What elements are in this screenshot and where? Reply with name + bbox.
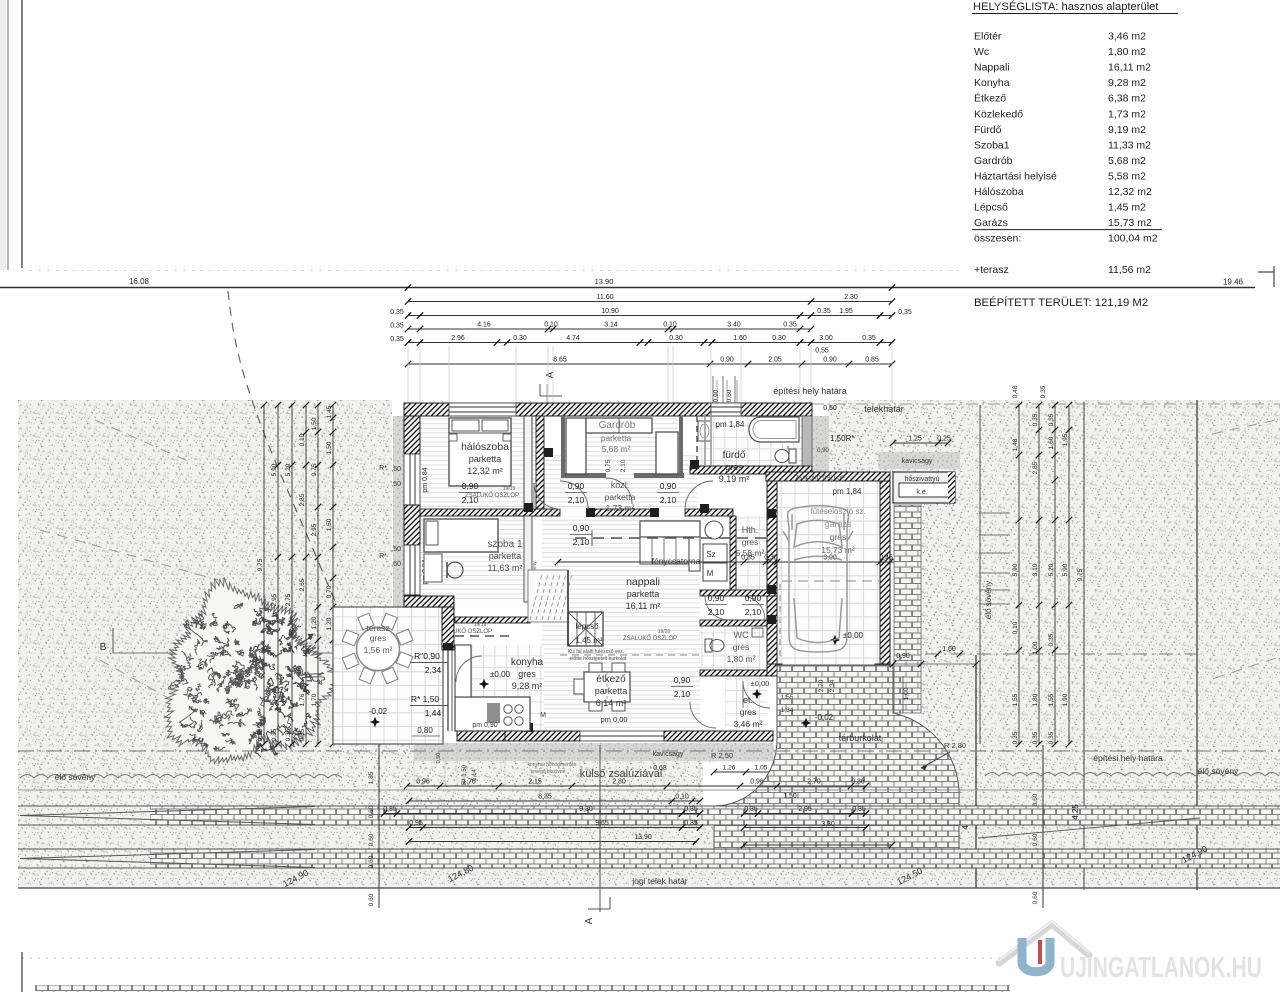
svg-text:10.90: 10.90 <box>601 308 619 315</box>
svg-text:0,35: 0,35 <box>684 806 698 813</box>
svg-text:2,34: 2,34 <box>425 665 442 675</box>
svg-text:gres: gres <box>742 537 759 547</box>
svg-text:gres: gres <box>740 707 757 717</box>
svg-text:9,65: 9,65 <box>595 820 609 827</box>
svg-text:1,48: 1,48 <box>1012 438 1019 451</box>
svg-text:3.00: 3.00 <box>819 335 833 342</box>
svg-text:1,80 m2: 1,80 m2 <box>1108 46 1146 58</box>
svg-text:9,75: 9,75 <box>1077 568 1084 581</box>
svg-text:2,95: 2,95 <box>798 806 812 813</box>
svg-text:5,90: 5,90 <box>1062 563 1069 576</box>
svg-text:étkező: étkező <box>596 674 626 685</box>
svg-text:2,10: 2,10 <box>708 607 725 617</box>
svg-text:15,73 m²: 15,73 m² <box>821 545 855 555</box>
svg-text:11,63 m²: 11,63 m² <box>488 563 523 573</box>
svg-text:M: M <box>707 569 714 578</box>
svg-text:1,26: 1,26 <box>723 765 736 772</box>
svg-text:kavicságy: kavicságy <box>653 751 684 758</box>
svg-text:0.90: 0.90 <box>720 357 734 364</box>
svg-text:építési hely határa: építési hely határa <box>773 386 847 396</box>
svg-text:0.10: 0.10 <box>663 322 677 329</box>
svg-text:11,33 m2: 11,33 m2 <box>1108 139 1151 151</box>
svg-text:R 2,80: R 2,80 <box>944 741 966 750</box>
svg-text:2,80: 2,80 <box>612 779 626 786</box>
svg-text:1,50: 1,50 <box>326 518 333 531</box>
svg-text:0,60: 0,60 <box>368 805 375 818</box>
svg-text:1.95: 1.95 <box>839 308 853 315</box>
svg-text:1,20: 1,20 <box>311 616 318 629</box>
svg-text:1,55: 1,55 <box>1048 693 1055 706</box>
svg-text:0,68: 0,68 <box>653 765 667 772</box>
svg-text:1,45 m2: 1,45 m2 <box>1108 202 1146 214</box>
svg-text:pm 0,90: pm 0,90 <box>472 722 497 729</box>
svg-text:100,04 m2: 100,04 m2 <box>1108 233 1158 245</box>
svg-text:0,60: 0,60 <box>1032 833 1039 846</box>
svg-text:Étkező: Étkező <box>974 92 1006 105</box>
svg-text:0,70: 0,70 <box>326 585 333 598</box>
svg-text:0,48: 0,48 <box>1012 385 1019 398</box>
svg-text:ZSALUKŐ OSZLOP: ZSALUKŐ OSZLOP <box>623 635 677 642</box>
svg-text:szoba 1: szoba 1 <box>487 539 522 550</box>
svg-text:0,85: 0,85 <box>741 555 755 562</box>
svg-text:Lépcső: Lépcső <box>974 202 1008 214</box>
svg-text:nappali: nappali <box>626 576 660 588</box>
svg-text:2,95: 2,95 <box>311 523 318 536</box>
svg-text:1,20: 1,20 <box>326 617 333 630</box>
svg-text:A: A <box>584 917 595 924</box>
svg-text:0,90: 0,90 <box>708 593 725 603</box>
svg-text:9,28 m²: 9,28 m² <box>512 681 543 691</box>
svg-text:1,55: 1,55 <box>1012 693 1019 706</box>
svg-text:Előtér: Előtér <box>974 31 1002 43</box>
svg-text:0.30: 0.30 <box>669 335 683 342</box>
svg-text:8.65: 8.65 <box>553 357 567 364</box>
svg-text:0,90: 0,90 <box>462 481 479 491</box>
svg-text:16.08: 16.08 <box>129 277 150 286</box>
svg-text:Garázs: Garázs <box>974 217 1008 229</box>
svg-text:0,96: 0,96 <box>416 779 430 786</box>
svg-text:kavicságy: kavicságy <box>902 458 933 465</box>
svg-text:2,10: 2,10 <box>573 537 590 547</box>
svg-text:6,38 m2: 6,38 m2 <box>1108 93 1146 105</box>
svg-text:0.30: 0.30 <box>772 335 786 342</box>
svg-text:9,19 m²: 9,19 m² <box>719 474 750 484</box>
svg-text:0,35: 0,35 <box>1032 413 1039 426</box>
svg-text:0,75: 0,75 <box>311 463 318 476</box>
svg-text:4.74: 4.74 <box>566 335 580 342</box>
svg-text:1,00: 1,00 <box>1032 641 1039 654</box>
svg-text:1,45: 1,45 <box>326 405 333 418</box>
svg-text:1,44: 1,44 <box>425 708 442 718</box>
svg-text:0,35: 0,35 <box>299 728 306 741</box>
svg-text:Hálószoba: Hálószoba <box>974 186 1024 198</box>
svg-text:élő sövény: élő sövény <box>1198 766 1239 776</box>
svg-text:8,35: 8,35 <box>538 794 552 801</box>
svg-text:2,70: 2,70 <box>818 679 825 692</box>
svg-text:0,90: 0,90 <box>817 448 829 454</box>
svg-text:előtte hőszigetelt burkolat: előtte hőszigetelt burkolat <box>570 656 627 662</box>
svg-text:telekhatár: telekhatár <box>864 404 904 414</box>
svg-text:0,35: 0,35 <box>1040 385 1047 398</box>
svg-text:1,60: 1,60 <box>1048 436 1055 449</box>
svg-text:0,35: 0,35 <box>1032 731 1039 744</box>
svg-text:A: A <box>545 371 556 378</box>
svg-text:13,90: 13,90 <box>634 834 652 841</box>
svg-text:lépcső: lépcső <box>575 622 599 631</box>
svg-text:15,73 m2: 15,73 m2 <box>1108 217 1152 229</box>
svg-text:0,35: 0,35 <box>744 806 758 813</box>
svg-text:1,25: 1,25 <box>908 436 922 443</box>
svg-text:±0,00: ±0,00 <box>751 679 770 688</box>
svg-text:0,10: 0,10 <box>1012 621 1019 634</box>
svg-text:tevegő elszívné: tevegő elszívné <box>531 769 566 775</box>
svg-text:19/20: 19/20 <box>658 629 671 635</box>
svg-text:0,35: 0,35 <box>390 336 404 343</box>
svg-text:0,35: 0,35 <box>1048 731 1055 744</box>
svg-text:1,90: 1,90 <box>1062 693 1069 706</box>
svg-text:R 2,50: R 2,50 <box>711 751 733 760</box>
svg-text:jogi telek határ: jogi telek határ <box>631 876 687 886</box>
svg-text:parketta: parketta <box>605 492 636 502</box>
svg-text:1,76: 1,76 <box>462 779 476 786</box>
svg-text:M: M <box>540 712 546 719</box>
svg-text:0.30: 0.30 <box>513 335 527 342</box>
svg-text:0,50: 0,50 <box>436 753 442 764</box>
svg-text:6,14 m²: 6,14 m² <box>596 698 627 708</box>
svg-text:11.60: 11.60 <box>597 294 614 301</box>
svg-text:0,90: 0,90 <box>573 523 590 533</box>
svg-text:0,35: 0,35 <box>271 728 278 741</box>
svg-text:19/19: 19/19 <box>503 486 516 492</box>
svg-text:Hth.: Hth. <box>742 525 759 535</box>
svg-text:HELYSÉGLISTA: hasznos alapter: HELYSÉGLISTA: hasznos alapterület <box>973 0 1159 13</box>
svg-text:12,32 m²: 12,32 m² <box>467 466 503 476</box>
svg-text:2,10: 2,10 <box>674 689 691 699</box>
svg-text:WC: WC <box>734 630 749 640</box>
svg-text:1,05: 1,05 <box>755 765 768 772</box>
svg-text:építési hely határa: építési hely határa <box>1093 753 1163 763</box>
svg-text:1,45 m²: 1,45 m² <box>575 636 602 645</box>
svg-text:1,34: 1,34 <box>781 707 794 714</box>
svg-text:0,35: 0,35 <box>257 728 264 741</box>
svg-text:BEÉPÍTETT TERÜLET: 121,19 M2: BEÉPÍTETT TERÜLET: 121,19 M2 <box>974 296 1148 309</box>
svg-text:0,60: 0,60 <box>1032 793 1039 806</box>
svg-text:5,58 m2: 5,58 m2 <box>1108 170 1146 182</box>
svg-text:térburkolat: térburkolat <box>839 733 882 743</box>
svg-text:terasz: terasz <box>366 623 389 633</box>
svg-text:k.e.: k.e. <box>916 489 927 496</box>
svg-text:2,10: 2,10 <box>660 495 677 505</box>
svg-text:,50: ,50 <box>391 561 401 568</box>
svg-text:9,28 m2: 9,28 m2 <box>1108 77 1146 89</box>
svg-text:élő sövény: élő sövény <box>984 581 993 619</box>
svg-text:1,50: 1,50 <box>326 441 333 454</box>
svg-text:2,70: 2,70 <box>807 779 821 786</box>
svg-text:1,73 m2: 1,73 m2 <box>1108 108 1146 120</box>
svg-text:élő sövény: élő sövény <box>55 772 96 782</box>
svg-text:Szoba1: Szoba1 <box>974 139 1010 151</box>
svg-text:+terasz: +terasz <box>974 264 1009 276</box>
svg-text:1,50: 1,50 <box>311 417 318 430</box>
svg-text:12,32 m2: 12,32 m2 <box>1108 186 1152 198</box>
svg-text:3,10: 3,10 <box>1032 563 1039 576</box>
svg-text:2,10: 2,10 <box>568 495 585 505</box>
svg-text:0,90: 0,90 <box>660 481 677 491</box>
svg-text:0,35: 0,35 <box>390 309 404 316</box>
svg-text:2,34: 2,34 <box>829 679 836 692</box>
svg-text:parketta: parketta <box>627 589 660 599</box>
svg-text:0,90: 0,90 <box>896 653 910 660</box>
svg-text:pm 0,00: pm 0,00 <box>600 715 627 724</box>
svg-text:0,60: 0,60 <box>368 855 375 868</box>
svg-text:2,15: 2,15 <box>528 779 542 786</box>
svg-text:összesen:: összesen: <box>974 233 1021 245</box>
svg-text:3.14: 3.14 <box>604 322 618 329</box>
svg-text:9,75: 9,75 <box>257 558 264 571</box>
svg-text:1,73 m²: 1,73 m² <box>606 503 635 513</box>
svg-text:0,35: 0,35 <box>898 309 912 316</box>
svg-text:közl.: közl. <box>611 480 630 490</box>
svg-text:et.: et. <box>743 695 753 705</box>
svg-text:1,56 m²: 1,56 m² <box>364 645 393 655</box>
svg-text:0,35: 0,35 <box>390 323 404 330</box>
svg-text:Gardrób: Gardrób <box>599 420 636 431</box>
svg-text:parketta: parketta <box>489 551 522 561</box>
svg-text:konyha: konyha <box>511 657 544 668</box>
svg-text:0.35: 0.35 <box>862 335 876 342</box>
svg-text:1,50R*: 1,50R* <box>830 434 854 443</box>
svg-text:5,20: 5,20 <box>1048 563 1055 576</box>
svg-text:0,30: 0,30 <box>764 555 778 562</box>
svg-text:Gardrób: Gardrób <box>974 155 1013 167</box>
svg-text:,50: ,50 <box>391 481 401 488</box>
svg-text:0,35: 0,35 <box>852 806 866 813</box>
svg-text:0,90: 0,90 <box>745 593 762 603</box>
svg-text:5,20: 5,20 <box>285 463 292 476</box>
svg-text:R"0,90: R"0,90 <box>414 651 440 661</box>
svg-text:-0,02: -0,02 <box>815 713 834 722</box>
svg-text:0,80: 0,80 <box>417 726 433 735</box>
svg-text:9,30: 9,30 <box>579 806 593 813</box>
svg-text:0,50: 0,50 <box>823 405 837 412</box>
svg-text:1,80 m²: 1,80 m² <box>727 654 756 664</box>
svg-text:pm 0,84: pm 0,84 <box>422 467 429 492</box>
svg-text:2,10: 2,10 <box>620 459 627 472</box>
svg-text:parketta: parketta <box>601 433 632 443</box>
svg-text:fürdő: fürdő <box>723 450 746 461</box>
svg-text:fénycsatorna: fénycsatorna <box>652 556 701 566</box>
svg-text:2.05: 2.05 <box>768 357 782 364</box>
svg-text:parketta: parketta <box>469 454 502 464</box>
svg-text:R* 1,50: R* 1,50 <box>411 694 440 704</box>
svg-text:2,75: 2,75 <box>285 593 292 606</box>
svg-text:2,10: 2,10 <box>745 607 762 617</box>
svg-text:0,96: 0,96 <box>750 779 764 786</box>
svg-text:,50: ,50 <box>391 466 401 473</box>
svg-text:1,55: 1,55 <box>781 694 794 701</box>
svg-text:0,90: 0,90 <box>674 675 691 685</box>
svg-text:16,11 m2: 16,11 m2 <box>1108 62 1151 74</box>
svg-text:4,25: 4,25 <box>1071 804 1080 820</box>
svg-text:0,10: 0,10 <box>675 794 689 801</box>
svg-text:konyhai hőhödmentes: konyhai hőhödmentes <box>528 762 577 768</box>
svg-text:5,68 m2: 5,68 m2 <box>1108 155 1146 167</box>
svg-text:0,10: 0,10 <box>299 433 306 446</box>
svg-text:0,75: 0,75 <box>605 459 612 472</box>
svg-text:Konyha: Konyha <box>974 77 1010 89</box>
svg-text:hálószoba: hálószoba <box>461 441 509 453</box>
svg-text:Sz: Sz <box>706 550 715 559</box>
svg-text:2,85: 2,85 <box>299 493 306 506</box>
svg-text:1,00: 1,00 <box>903 687 910 700</box>
svg-text:hőszivattyú: hőszivattyú <box>904 476 939 483</box>
svg-text:2,95: 2,95 <box>271 593 278 606</box>
svg-text:3,46 m2: 3,46 m2 <box>1108 31 1146 43</box>
svg-text:11,56 m2: 11,56 m2 <box>1108 264 1151 276</box>
svg-text:0,60: 0,60 <box>1032 891 1039 904</box>
svg-text:0,25: 0,25 <box>937 436 951 443</box>
svg-text:4.16: 4.16 <box>477 322 491 329</box>
svg-text:R*: R* <box>379 465 387 472</box>
svg-text:2,10: 2,10 <box>462 495 479 505</box>
svg-text:3,46 m²: 3,46 m² <box>734 719 763 729</box>
svg-text:1,76: 1,76 <box>299 693 306 706</box>
svg-text:-0,02: -0,02 <box>369 707 388 716</box>
svg-text:2.96: 2.96 <box>451 335 465 342</box>
svg-text:0,90: 0,90 <box>713 389 720 402</box>
svg-text:gres: gres <box>725 462 743 472</box>
svg-text:0,36: 0,36 <box>851 779 865 786</box>
svg-text:2.30: 2.30 <box>844 294 858 301</box>
svg-text:0.90: 0.90 <box>823 357 837 364</box>
svg-text:0.35: 0.35 <box>817 308 831 315</box>
svg-text:5,90: 5,90 <box>1012 563 1019 576</box>
svg-text:19.46: 19.46 <box>1223 278 1244 287</box>
svg-text:3.40: 3.40 <box>727 322 741 329</box>
svg-text:Nappali: Nappali <box>974 62 1010 74</box>
svg-text:0,35: 0,35 <box>285 728 292 741</box>
svg-text:0.10: 0.10 <box>544 322 558 329</box>
svg-text:19/19: 19/19 <box>474 622 487 628</box>
svg-text:pm 1,84: pm 1,84 <box>833 487 862 496</box>
svg-text:B: B <box>100 642 107 653</box>
svg-text:0,95: 0,95 <box>409 820 423 827</box>
svg-text:2,65: 2,65 <box>299 578 306 591</box>
svg-text:2,85: 2,85 <box>1032 461 1039 474</box>
svg-text:Kis fal alatti futéscső vez.: Kis fal alatti futéscső vez. <box>568 649 624 655</box>
svg-text:0,35: 0,35 <box>1048 633 1055 646</box>
svg-text:1,60: 1,60 <box>942 646 956 653</box>
svg-text:13.90: 13.90 <box>595 277 614 286</box>
svg-text:1,95: 1,95 <box>1062 433 1069 446</box>
svg-text:0,90: 0,90 <box>568 481 585 491</box>
svg-text:gres: gres <box>370 633 387 643</box>
svg-text:R*: R* <box>379 553 387 560</box>
svg-text:1,85: 1,85 <box>368 771 375 784</box>
svg-text:Wc: Wc <box>974 46 989 58</box>
svg-text:3,30: 3,30 <box>821 821 835 828</box>
svg-text:0,35: 0,35 <box>383 806 397 813</box>
svg-text:1,50: 1,50 <box>783 793 797 800</box>
svg-text:0,60: 0,60 <box>368 833 375 846</box>
svg-text:Háztartási helyisé: Háztartási helyisé <box>974 170 1057 182</box>
svg-text:0,35: 0,35 <box>684 820 698 827</box>
svg-text:16,11 m²: 16,11 m² <box>626 601 661 611</box>
svg-text:1,70: 1,70 <box>311 693 318 706</box>
svg-text:5,90: 5,90 <box>271 463 278 476</box>
svg-text:Közlekedő: Közlekedő <box>974 108 1023 120</box>
svg-text:gres: gres <box>830 532 847 542</box>
svg-text:0,45: 0,45 <box>879 555 893 562</box>
svg-text:Fürdő: Fürdő <box>974 124 1002 136</box>
svg-text:0,55: 0,55 <box>815 348 829 355</box>
svg-text:gres: gres <box>518 669 536 679</box>
svg-text:±0,00: ±0,00 <box>490 670 511 679</box>
svg-text:gres: gres <box>733 642 750 652</box>
svg-text:9,19 m2: 9,19 m2 <box>1108 124 1146 136</box>
svg-text:1,80: 1,80 <box>1032 693 1039 706</box>
svg-text:±0,00: ±0,00 <box>843 631 864 640</box>
svg-text:pm 1,84: pm 1,84 <box>716 420 745 429</box>
svg-text:0,60: 0,60 <box>368 893 375 906</box>
svg-text:ZSALUKŐ OSZLOP: ZSALUKŐ OSZLOP <box>795 475 845 482</box>
svg-text:5,68 m²: 5,68 m² <box>602 444 631 454</box>
svg-text:1.60: 1.60 <box>733 335 747 342</box>
svg-text:,50: ,50 <box>391 546 401 553</box>
svg-text:0.35: 0.35 <box>783 322 797 329</box>
svg-text:UJINGATLANOK.HU: UJINGATLANOK.HU <box>1060 952 1262 984</box>
svg-text:0.85: 0.85 <box>865 357 879 364</box>
svg-text:parketta: parketta <box>595 686 628 696</box>
svg-text:0,35: 0,35 <box>1048 413 1055 426</box>
svg-text:0,35: 0,35 <box>1012 731 1019 744</box>
